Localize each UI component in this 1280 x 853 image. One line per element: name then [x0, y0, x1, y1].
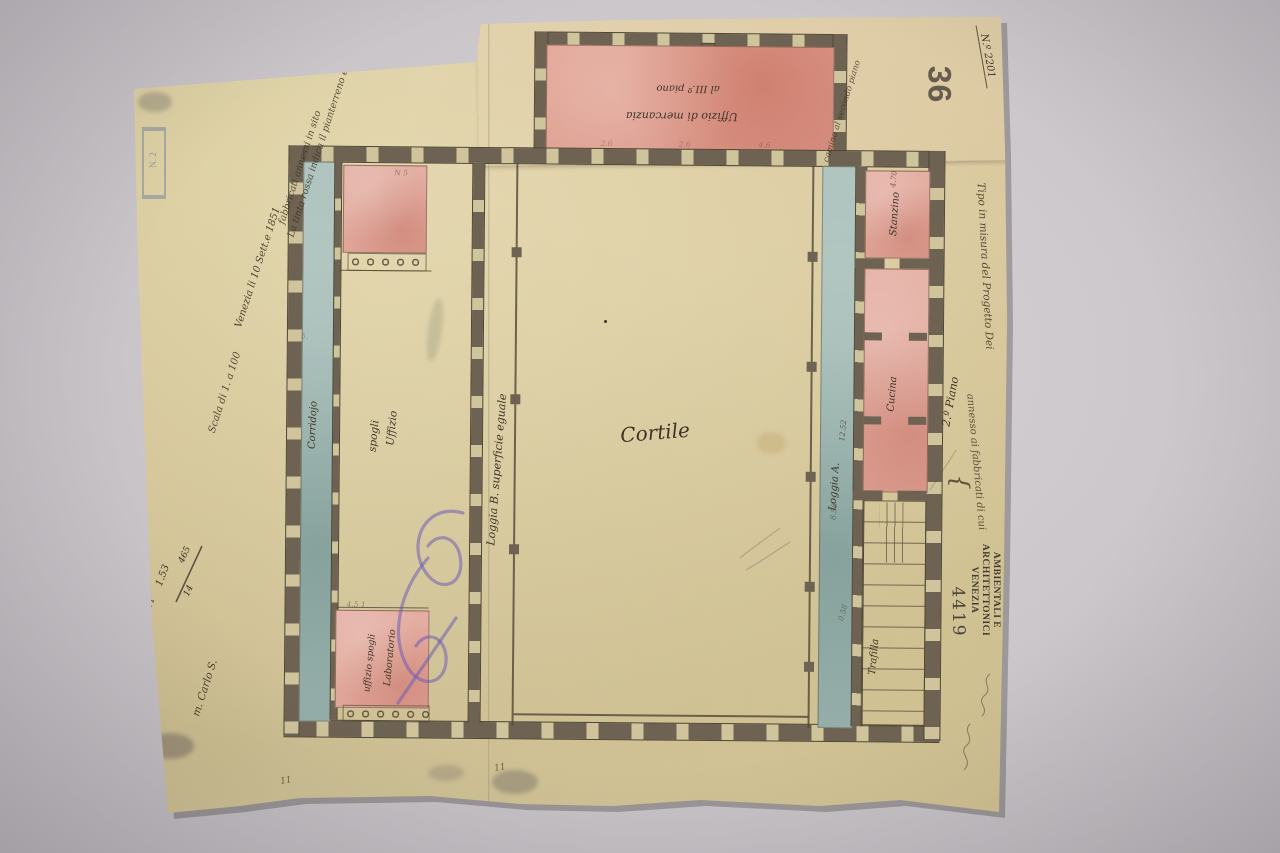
blue-stamp-number: N. 2 — [148, 143, 158, 177]
inventory-number: 4419 — [948, 584, 969, 640]
measurement-number: 8.58 — [828, 503, 839, 520]
stamp-line-3: VENEZIA — [968, 510, 979, 670]
measurement-number: 2.6 — [679, 140, 691, 149]
blue-registry-stamp: N. 2 — [142, 127, 166, 199]
measurement-number: 0.58 — [836, 603, 849, 622]
measurement-number: 5. — [301, 331, 308, 340]
pencil-floor-note — [922, 440, 962, 500]
photo-of-archival-plan: Cortile Corridojo Uffizio spogli Laborat… — [0, 0, 1280, 853]
measurement-number: 2.6 — [601, 139, 613, 148]
measurement-number: 4.5 1 — [347, 600, 366, 609]
pencil-marks — [730, 518, 800, 578]
violet-pencil-scribble — [368, 498, 488, 718]
measurement-number: 4.70 — [888, 170, 899, 187]
measurement-number: N 5 — [394, 168, 408, 177]
measurement-number: 12.52 — [837, 419, 848, 441]
measurement-number: 4.6 — [759, 140, 771, 149]
paper-sheet: Cortile Corridojo Uffizio spogli Laborat… — [0, 0, 1280, 853]
stamp-line-2: AMBIENTALI E ARCHITETTONICI — [979, 510, 1001, 670]
archive-number-stamp: 36 — [921, 52, 958, 118]
